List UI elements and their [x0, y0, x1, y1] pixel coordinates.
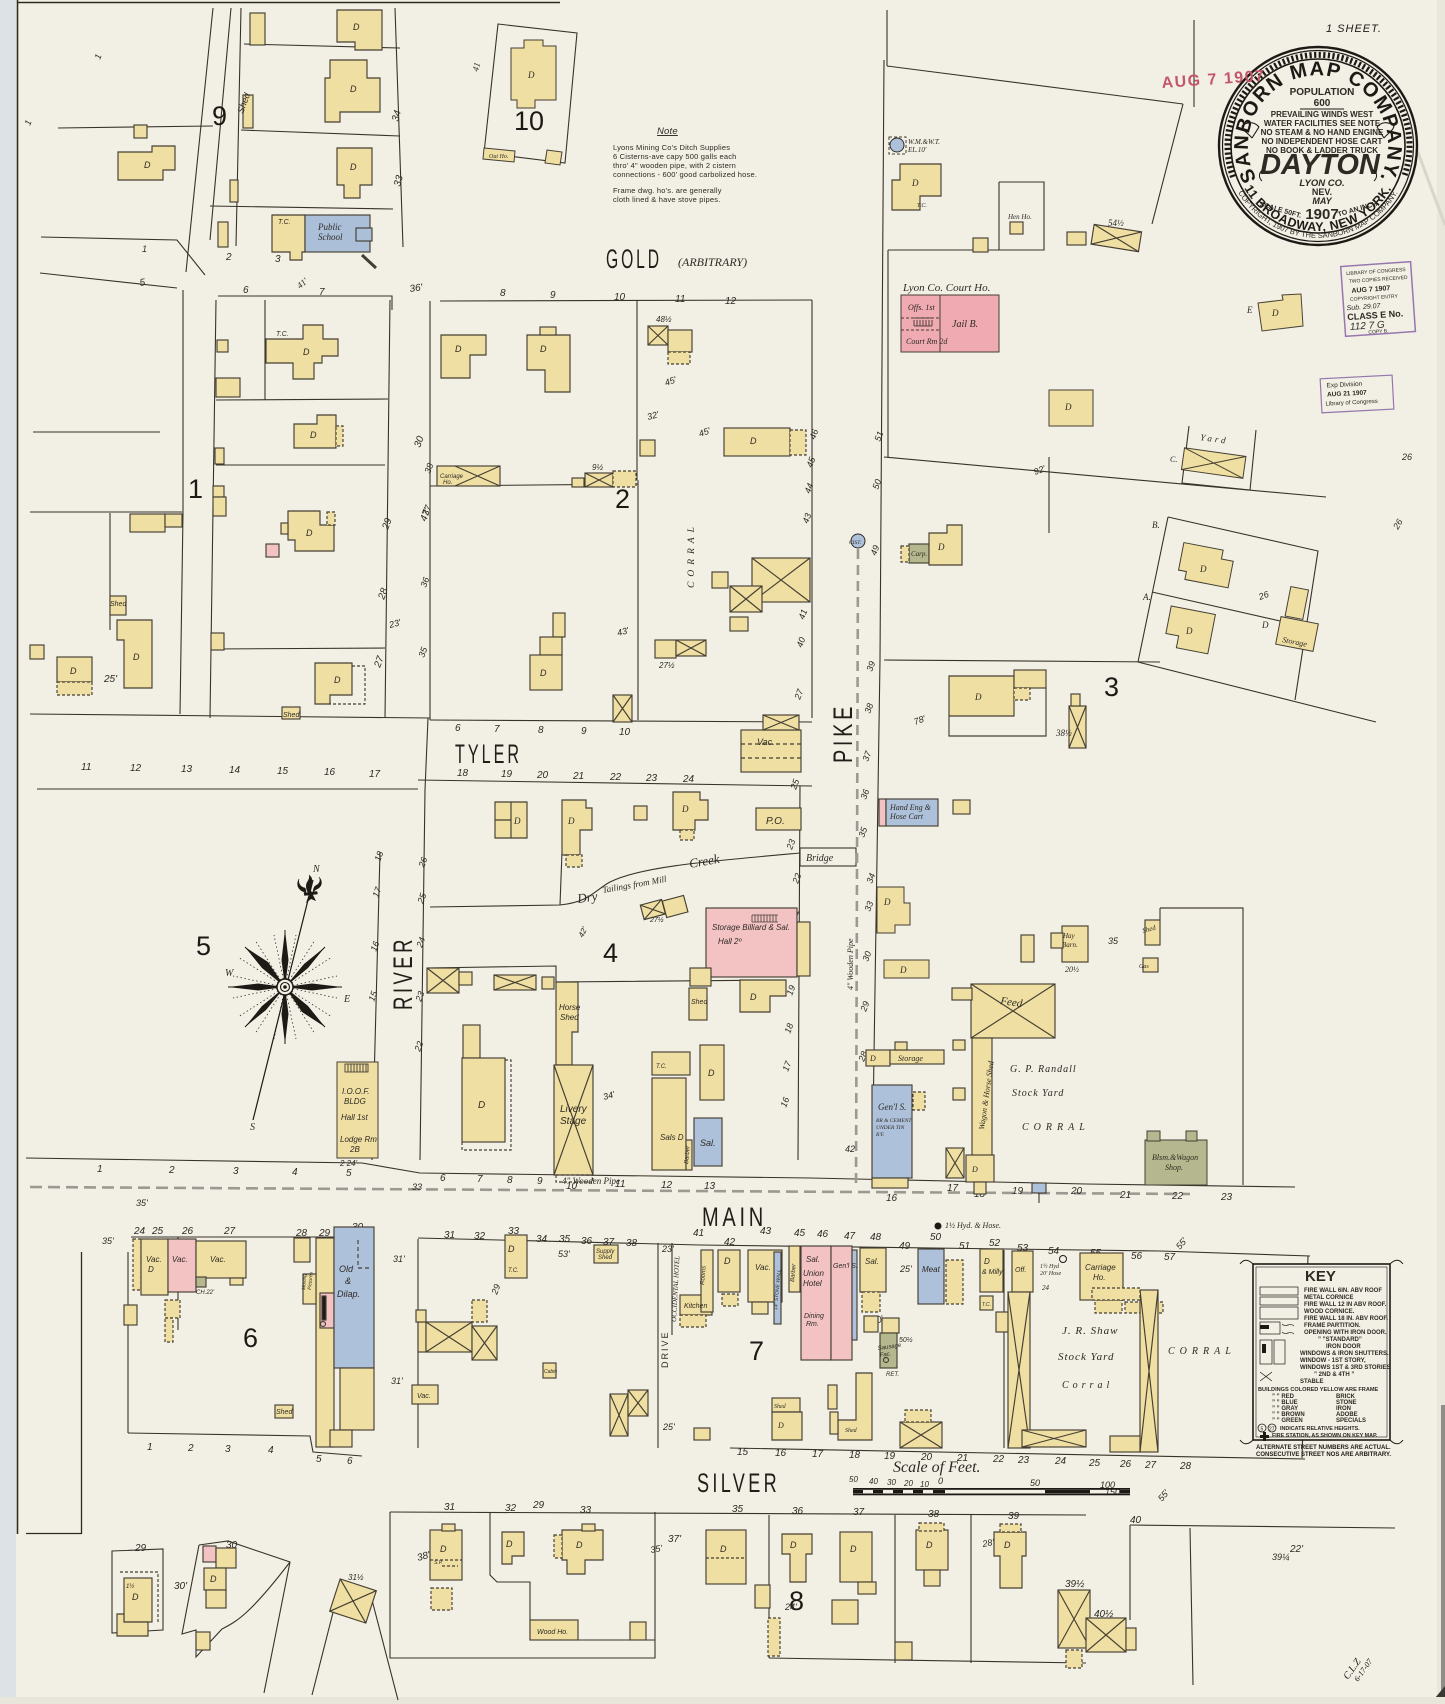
- svg-text:1½: 1½: [126, 1583, 134, 1590]
- svg-text:N: N: [312, 864, 321, 875]
- svg-text:BLDG: BLDG: [344, 1097, 366, 1106]
- svg-text:15: 15: [277, 766, 289, 777]
- svg-text:Horse: Horse: [559, 1003, 581, 1012]
- svg-text:D: D: [883, 897, 891, 907]
- svg-text:D: D: [984, 1257, 990, 1266]
- svg-text:Carriage: Carriage: [1085, 1263, 1116, 1272]
- svg-text:Vac.: Vac.: [755, 1263, 771, 1272]
- svg-text:46: 46: [817, 1229, 829, 1240]
- svg-text:Stage: Stage: [560, 1116, 587, 1127]
- svg-text:8: 8: [538, 725, 544, 736]
- svg-text:30: 30: [887, 1478, 896, 1487]
- svg-text:22: 22: [992, 1454, 1005, 1465]
- svg-text:cloth lined & have stove pipes: cloth lined & have stove pipes.: [613, 195, 721, 204]
- svg-text:I.O.O.F.: I.O.O.F.: [342, 1087, 369, 1096]
- svg-text:2 24': 2 24': [339, 1159, 358, 1168]
- svg-text:25': 25': [899, 1264, 912, 1274]
- svg-text:Stock Yard: Stock Yard: [1012, 1088, 1064, 1099]
- svg-text:1: 1: [147, 1442, 153, 1453]
- svg-text:Stock Yard: Stock Yard: [1058, 1351, 1115, 1363]
- svg-text:Vac.: Vac.: [146, 1255, 162, 1264]
- svg-text:T.C.: T.C.: [508, 1268, 519, 1274]
- svg-text:16: 16: [886, 1193, 898, 1204]
- svg-text:FIRE WALL 12 IN ABV ROOF.: FIRE WALL 12 IN ABV ROOF.: [1304, 1302, 1387, 1308]
- svg-text:T.C.: T.C.: [656, 1064, 667, 1070]
- svg-text:D: D: [724, 1256, 731, 1266]
- svg-text:22: 22: [1171, 1191, 1184, 1202]
- svg-text:13: 13: [704, 1181, 716, 1192]
- svg-text:Note: Note: [657, 126, 678, 137]
- svg-text:11: 11: [675, 294, 685, 305]
- svg-text:1: 1: [97, 1164, 103, 1175]
- svg-text:10: 10: [614, 292, 626, 303]
- svg-text:D: D: [144, 160, 151, 170]
- svg-text:35: 35: [732, 1504, 744, 1515]
- svg-text:31½: 31½: [348, 1573, 364, 1582]
- svg-text:Hotel: Hotel: [803, 1279, 822, 1288]
- svg-text:D: D: [513, 816, 521, 826]
- svg-text:CORRAL: CORRAL: [1022, 1122, 1090, 1133]
- svg-text:18: 18: [849, 1450, 861, 1461]
- svg-text:6: 6: [440, 1173, 446, 1184]
- svg-text:41: 41: [693, 1228, 704, 1239]
- svg-text:UNDER TIN: UNDER TIN: [876, 1125, 905, 1131]
- svg-text:38½: 38½: [1055, 728, 1072, 738]
- svg-text:D: D: [1271, 308, 1279, 318]
- svg-text:Shed: Shed: [598, 1255, 613, 1261]
- svg-text:D: D: [350, 162, 357, 172]
- svg-text:7: 7: [477, 1174, 483, 1185]
- svg-text:40: 40: [869, 1477, 878, 1486]
- svg-text:24: 24: [1054, 1456, 1067, 1467]
- svg-text:22: 22: [609, 772, 622, 783]
- svg-text:” 2ND & 4TH ”: ” 2ND & 4TH ”: [1314, 1372, 1354, 1378]
- svg-text:CH.22': CH.22': [196, 1290, 215, 1296]
- svg-text:20: 20: [1070, 1186, 1083, 1197]
- svg-text:20½: 20½: [1065, 965, 1079, 974]
- svg-text:INDICATE RELATIVE HEIGHTS.: INDICATE RELATIVE HEIGHTS.: [1280, 1426, 1360, 1432]
- svg-text:D: D: [708, 1068, 715, 1078]
- svg-text:10: 10: [514, 106, 544, 136]
- svg-text:20' Hose: 20' Hose: [1040, 1271, 1061, 1277]
- svg-text:5: 5: [316, 1454, 322, 1465]
- svg-text:D: D: [148, 1265, 154, 1274]
- svg-text:50: 50: [849, 1475, 858, 1484]
- svg-text:35: 35: [1108, 936, 1119, 946]
- svg-text:Shed: Shed: [276, 1409, 293, 1416]
- svg-text:NO STEAM & NO HAND ENGINE: NO STEAM & NO HAND ENGINE: [1261, 128, 1384, 137]
- svg-text:FIRE STATION, AS SHOWN ON KEY: FIRE STATION, AS SHOWN ON KEY MAP.: [1272, 1433, 1378, 1439]
- svg-text:24: 24: [133, 1226, 146, 1237]
- svg-text:50½: 50½: [899, 1336, 913, 1344]
- svg-text:23: 23: [1017, 1455, 1030, 1466]
- svg-text:37': 37': [668, 1534, 682, 1545]
- svg-text:WOOD CORNICE.: WOOD CORNICE.: [1304, 1309, 1355, 1315]
- svg-text:38: 38: [626, 1238, 638, 1249]
- svg-text:3: 3: [1104, 672, 1119, 702]
- svg-text:45: 45: [794, 1228, 806, 1239]
- svg-text:Corral: Corral: [1062, 1380, 1113, 1391]
- svg-text:24: 24: [682, 774, 695, 785]
- svg-text:1: 1: [188, 474, 203, 504]
- svg-text:D: D: [777, 1421, 784, 1430]
- svg-text:Lyon Co. Court Ho.: Lyon Co. Court Ho.: [902, 282, 990, 294]
- svg-text:FIRE WALL 6IN. ABV ROOF: FIRE WALL 6IN. ABV ROOF: [1304, 1288, 1382, 1294]
- svg-text:NO INDEPENDENT HOSE CART: NO INDEPENDENT HOSE CART: [1262, 137, 1383, 146]
- svg-text:10: 10: [619, 727, 631, 738]
- svg-text:Rm.: Rm.: [806, 1321, 819, 1328]
- svg-text:D: D: [971, 1165, 978, 1174]
- svg-text:IRON DOOR: IRON DOOR: [1326, 1344, 1361, 1350]
- svg-text:Out Ho.: Out Ho.: [489, 154, 508, 160]
- svg-text:Sal.: Sal.: [806, 1255, 820, 1264]
- svg-text:P.O.: P.O.: [766, 816, 785, 827]
- svg-text:Gas: Gas: [1139, 964, 1149, 970]
- svg-text:9½: 9½: [592, 463, 603, 472]
- svg-text:WINDOWS & IRON SHUTTERS.: WINDOWS & IRON SHUTTERS.: [1300, 1351, 1389, 1357]
- svg-text:30': 30': [174, 1581, 188, 1592]
- svg-text:D: D: [540, 344, 547, 354]
- svg-text:J. R. Shaw: J. R. Shaw: [1062, 1325, 1118, 1337]
- svg-text:21: 21: [572, 771, 584, 782]
- svg-text:38: 38: [928, 1509, 940, 1520]
- svg-text:SILVER: SILVER: [697, 1468, 780, 1498]
- svg-text:Union: Union: [803, 1269, 824, 1278]
- svg-text:4" Wooden Pipe: 4" Wooden Pipe: [846, 938, 855, 990]
- svg-text:W.M.&W.T.: W.M.&W.T.: [908, 138, 940, 146]
- svg-text:1907: 1907: [1305, 206, 1338, 223]
- svg-text:49: 49: [899, 1241, 911, 1252]
- svg-text:6: 6: [347, 1456, 353, 1467]
- svg-text:22': 22': [1289, 1544, 1304, 1555]
- svg-text:Kitchen: Kitchen: [684, 1303, 707, 1310]
- svg-text:8: 8: [507, 1175, 513, 1186]
- svg-text:36: 36: [792, 1506, 804, 1517]
- svg-text:Sal.: Sal.: [700, 1138, 716, 1148]
- svg-text:2: 2: [187, 1443, 194, 1454]
- svg-text:39½: 39½: [1065, 1579, 1085, 1590]
- svg-text:D: D: [506, 1539, 513, 1549]
- svg-text:Hall 2º: Hall 2º: [718, 937, 742, 946]
- svg-text:DRIVE: DRIVE: [660, 1330, 670, 1368]
- svg-text:Hay: Hay: [1062, 932, 1076, 940]
- svg-text:24: 24: [1042, 1284, 1050, 1292]
- svg-text:S: S: [250, 1122, 255, 1133]
- svg-text:50: 50: [930, 1232, 942, 1243]
- svg-text:TYLER: TYLER: [455, 739, 522, 769]
- svg-text:EL.10': EL.10': [907, 146, 927, 154]
- svg-text:Shop.: Shop.: [1165, 1163, 1183, 1172]
- svg-text:1: 1: [142, 244, 147, 254]
- svg-text:34: 34: [536, 1234, 548, 1245]
- svg-text:D: D: [869, 1054, 876, 1063]
- svg-text:25: 25: [1088, 1458, 1101, 1469]
- svg-text:D: D: [1185, 626, 1193, 636]
- svg-text:40: 40: [1130, 1515, 1142, 1526]
- svg-text:Gen'l S.: Gen'l S.: [833, 1263, 858, 1270]
- svg-text:KEY: KEY: [1305, 1268, 1336, 1285]
- svg-text:Off.: Off.: [1015, 1267, 1026, 1274]
- svg-text:FIRE WALL 18 IN. ABV ROOF.: FIRE WALL 18 IN. ABV ROOF.: [1304, 1316, 1388, 1322]
- svg-text:RET.: RET.: [886, 1372, 899, 1378]
- svg-text:57: 57: [1164, 1252, 1176, 1263]
- svg-text:33: 33: [580, 1505, 592, 1516]
- svg-text:D: D: [926, 1540, 933, 1550]
- svg-text:D: D: [306, 528, 313, 538]
- svg-text:20: 20: [536, 770, 549, 781]
- svg-text:Sal.: Sal.: [865, 1257, 879, 1266]
- svg-text:D: D: [70, 666, 77, 676]
- svg-text:Vac.: Vac.: [757, 737, 775, 747]
- svg-text:DAYTON: DAYTON: [1260, 149, 1381, 181]
- svg-text:14: 14: [229, 765, 241, 776]
- svg-text:24': 24': [784, 1602, 797, 1612]
- svg-text:D: D: [353, 22, 360, 32]
- svg-text:Cabin: Cabin: [544, 1369, 557, 1375]
- svg-text:SPECIALS: SPECIALS: [1336, 1418, 1366, 1424]
- svg-text:4: 4: [292, 1167, 298, 1178]
- svg-text:Livery: Livery: [560, 1104, 588, 1115]
- svg-text:26: 26: [1119, 1459, 1132, 1470]
- svg-text:51: 51: [959, 1241, 970, 1252]
- svg-text:29: 29: [134, 1543, 147, 1554]
- svg-text:27½: 27½: [649, 916, 664, 924]
- svg-text:WINDOW - 1ST STORY,: WINDOW - 1ST STORY,: [1300, 1358, 1366, 1364]
- svg-text:Shed: Shed: [691, 999, 708, 1006]
- svg-text:1½ Hyd. & Hose.: 1½ Hyd. & Hose.: [945, 1221, 1001, 1230]
- svg-text:OPENING WITH IRON DOOR.: OPENING WITH IRON DOOR.: [1304, 1330, 1387, 1336]
- svg-text:Old: Old: [339, 1264, 354, 1274]
- svg-text:27½: 27½: [658, 661, 675, 670]
- svg-text:13: 13: [181, 764, 193, 775]
- svg-text:” ”STANDARD”: ” ”STANDARD”: [1318, 1337, 1362, 1343]
- svg-text:E: E: [1246, 305, 1253, 315]
- svg-text:11: 11: [615, 1179, 625, 1190]
- svg-text:12: 12: [725, 296, 737, 307]
- svg-text:Scale of Feet.: Scale of Feet.: [893, 1459, 981, 1476]
- svg-text:19: 19: [501, 769, 513, 780]
- svg-text:METAL CORNICE: METAL CORNICE: [1304, 1295, 1353, 1301]
- svg-text:27: 27: [223, 1226, 236, 1237]
- svg-text:2: 2: [168, 1165, 175, 1176]
- svg-text:48: 48: [870, 1232, 882, 1243]
- svg-text:Hen Ho.: Hen Ho.: [1007, 213, 1032, 221]
- svg-text:D: D: [350, 84, 357, 94]
- svg-text:D: D: [133, 652, 140, 662]
- svg-text:Jail B.: Jail B.: [952, 319, 978, 330]
- svg-text:11: 11: [81, 762, 91, 773]
- svg-text:” ” GREEN: ” ” GREEN: [1272, 1418, 1303, 1424]
- svg-text:29: 29: [532, 1500, 545, 1511]
- svg-text:9: 9: [550, 290, 556, 301]
- svg-text:Court Rm 2d: Court Rm 2d: [906, 337, 948, 346]
- svg-text:Barn.: Barn.: [1062, 941, 1078, 949]
- svg-text:T.C.: T.C.: [917, 203, 927, 209]
- svg-text:6: 6: [455, 723, 461, 734]
- svg-text:23: 23: [645, 773, 658, 784]
- svg-text:D: D: [576, 1540, 583, 1550]
- svg-text:28: 28: [1179, 1461, 1192, 1472]
- svg-text:52: 52: [989, 1238, 1001, 1249]
- svg-text:D: D: [850, 1544, 857, 1554]
- svg-text:31: 31: [444, 1502, 455, 1513]
- svg-text:connections - 600' good carbol: connections - 600' good carbolized hose.: [613, 170, 757, 179]
- svg-text:35': 35': [650, 1543, 664, 1555]
- svg-text:&: &: [345, 1276, 351, 1286]
- svg-text:Shed: Shed: [283, 712, 300, 719]
- svg-text:2B: 2B: [349, 1145, 360, 1154]
- svg-text:Hose Cart: Hose Cart: [889, 812, 924, 821]
- svg-text:D: D: [790, 1540, 797, 1550]
- svg-text:Hall 1st: Hall 1st: [341, 1113, 368, 1122]
- svg-text:D: D: [1004, 1540, 1011, 1550]
- svg-text:54½: 54½: [1108, 218, 1124, 228]
- svg-text:Public: Public: [317, 222, 342, 232]
- svg-text:Shed: Shed: [560, 1013, 579, 1022]
- svg-text:Gen'l S.: Gen'l S.: [878, 1102, 906, 1112]
- svg-text:Dry: Dry: [575, 888, 598, 906]
- svg-text:27: 27: [1269, 1427, 1275, 1433]
- svg-text:D: D: [540, 668, 547, 678]
- svg-text:WINDOWS 1ST & 3RD STORIES: WINDOWS 1ST & 3RD STORIES: [1300, 1365, 1391, 1371]
- svg-text:Frame dwg. ho's. are generally: Frame dwg. ho's. are generally: [613, 186, 722, 195]
- svg-text:Storage: Storage: [898, 1054, 923, 1063]
- svg-text:Ho.: Ho.: [1093, 1273, 1105, 1282]
- svg-text:PIKE: PIKE: [828, 703, 858, 763]
- svg-text:A.: A.: [1142, 592, 1151, 602]
- svg-text:39: 39: [1008, 1511, 1020, 1522]
- svg-text:D: D: [720, 1544, 727, 1554]
- svg-text:D: D: [937, 542, 945, 552]
- svg-text:B.: B.: [1152, 520, 1160, 530]
- svg-text:MAY: MAY: [1312, 196, 1332, 206]
- svg-text:0: 0: [938, 1476, 943, 1486]
- svg-text:BUILDINGS COLORED YELLOW ARE F: BUILDINGS COLORED YELLOW ARE FRAME: [1258, 1387, 1379, 1393]
- svg-text:7: 7: [319, 287, 325, 298]
- svg-text:S.P.: S.P.: [434, 1560, 443, 1566]
- svg-text:10: 10: [920, 1480, 929, 1489]
- svg-text:7: 7: [749, 1336, 764, 1366]
- svg-text:4: 4: [603, 938, 618, 968]
- svg-text:48½: 48½: [656, 315, 672, 324]
- svg-text:25': 25': [103, 674, 118, 685]
- svg-text:Vac.: Vac.: [210, 1255, 226, 1264]
- svg-text:CONSECUTIVE STREET NOS ARE ARB: CONSECUTIVE STREET NOS ARE ARBITRARY.: [1256, 1452, 1391, 1458]
- svg-text:Storage Billiard & Sal.: Storage Billiard & Sal.: [712, 923, 790, 932]
- svg-text:E: E: [343, 994, 350, 1005]
- svg-text:1½ Hyd: 1½ Hyd: [1040, 1263, 1060, 1270]
- svg-text:2: 2: [225, 252, 232, 263]
- svg-text:D: D: [478, 1100, 485, 1111]
- svg-text:Vac.: Vac.: [172, 1255, 188, 1264]
- svg-text:R'F.: R'F.: [875, 1132, 885, 1138]
- svg-text:POPULATION: POPULATION: [1290, 87, 1355, 98]
- svg-text:Lodge Rm: Lodge Rm: [340, 1135, 377, 1144]
- svg-text:19: 19: [1012, 1186, 1024, 1197]
- svg-text:31: 31: [444, 1230, 455, 1241]
- svg-text:35': 35': [136, 1198, 148, 1208]
- svg-text:2: 2: [615, 484, 630, 514]
- svg-text:D: D: [527, 70, 535, 80]
- svg-text:Vac.: Vac.: [417, 1393, 431, 1400]
- svg-text:9: 9: [537, 1176, 543, 1187]
- svg-text:Meat: Meat: [922, 1265, 941, 1274]
- svg-text:(ARBITRARY): (ARBITRARY): [678, 255, 747, 269]
- svg-text:25: 25: [151, 1226, 164, 1237]
- svg-text:26: 26: [181, 1226, 194, 1237]
- svg-text:25': 25': [662, 1422, 675, 1432]
- svg-text:5: 5: [346, 1168, 352, 1179]
- svg-text:20: 20: [903, 1479, 913, 1488]
- svg-text:31': 31': [393, 1254, 405, 1264]
- svg-text:50: 50: [1030, 1478, 1040, 1488]
- svg-text:17: 17: [812, 1449, 824, 1460]
- svg-text:1 SHEET.: 1 SHEET.: [1326, 23, 1382, 35]
- svg-text:37: 37: [853, 1507, 865, 1518]
- svg-text:35: 35: [559, 1234, 571, 1245]
- svg-text:16: 16: [775, 1448, 787, 1459]
- svg-text:Shed: Shed: [845, 1428, 858, 1434]
- svg-text:Wood Ho.: Wood Ho.: [537, 1629, 568, 1636]
- svg-text:9: 9: [581, 726, 587, 737]
- svg-text:Ho.: Ho.: [443, 480, 452, 486]
- svg-text:D: D: [681, 804, 689, 814]
- svg-text:D: D: [1261, 620, 1269, 630]
- svg-text:D: D: [911, 178, 919, 188]
- svg-text:CORRAL: CORRAL: [1168, 1346, 1236, 1357]
- svg-text:MAIN: MAIN: [702, 1202, 767, 1232]
- svg-text:29: 29: [318, 1228, 331, 1239]
- svg-text:35': 35': [102, 1236, 114, 1246]
- svg-text:6: 6: [243, 285, 249, 296]
- svg-text:43: 43: [760, 1226, 772, 1237]
- svg-text:3: 3: [233, 1166, 239, 1177]
- svg-text:D: D: [132, 1592, 139, 1602]
- svg-text:T.C.: T.C.: [982, 1302, 991, 1308]
- svg-text:56: 56: [1131, 1251, 1143, 1262]
- svg-text:10: 10: [566, 1181, 578, 1192]
- svg-text:D: D: [455, 344, 462, 354]
- svg-text:T.C.: T.C.: [278, 219, 291, 226]
- svg-text:C.: C.: [1170, 455, 1177, 464]
- svg-text:39¼: 39¼: [1272, 1552, 1290, 1562]
- svg-text:D: D: [303, 347, 310, 357]
- svg-text:D: D: [750, 992, 757, 1002]
- svg-text:BR & CEMENT: BR & CEMENT: [876, 1118, 912, 1124]
- svg-text:CORRAL: CORRAL: [687, 522, 697, 588]
- svg-text:& Milly: & Milly: [982, 1269, 1003, 1276]
- svg-text:Shed: Shed: [774, 1404, 787, 1410]
- svg-text:12: 12: [661, 1180, 673, 1191]
- svg-text:School: School: [318, 232, 343, 242]
- svg-text:Shed: Shed: [110, 601, 127, 608]
- svg-text:D: D: [334, 675, 341, 685]
- svg-text:4: 4: [268, 1445, 274, 1456]
- svg-text:27: 27: [1144, 1460, 1157, 1471]
- svg-text:7: 7: [494, 724, 500, 735]
- svg-text:PREVAILING WINDS WEST: PREVAILING WINDS WEST: [1271, 110, 1374, 119]
- svg-text:17: 17: [947, 1183, 959, 1194]
- svg-text:28: 28: [295, 1228, 308, 1239]
- svg-text:thro' 4" wooden pipe, with 2 c: thro' 4" wooden pipe, with 2 cistern: [613, 161, 736, 170]
- svg-text:T.C.: T.C.: [276, 331, 289, 338]
- svg-text:5: 5: [1261, 1427, 1264, 1433]
- svg-text:3: 3: [275, 254, 281, 265]
- svg-text:32: 32: [474, 1231, 486, 1242]
- svg-text:CIST.: CIST.: [849, 540, 861, 546]
- svg-text:D: D: [1199, 564, 1207, 574]
- svg-text:600: 600: [1314, 98, 1331, 109]
